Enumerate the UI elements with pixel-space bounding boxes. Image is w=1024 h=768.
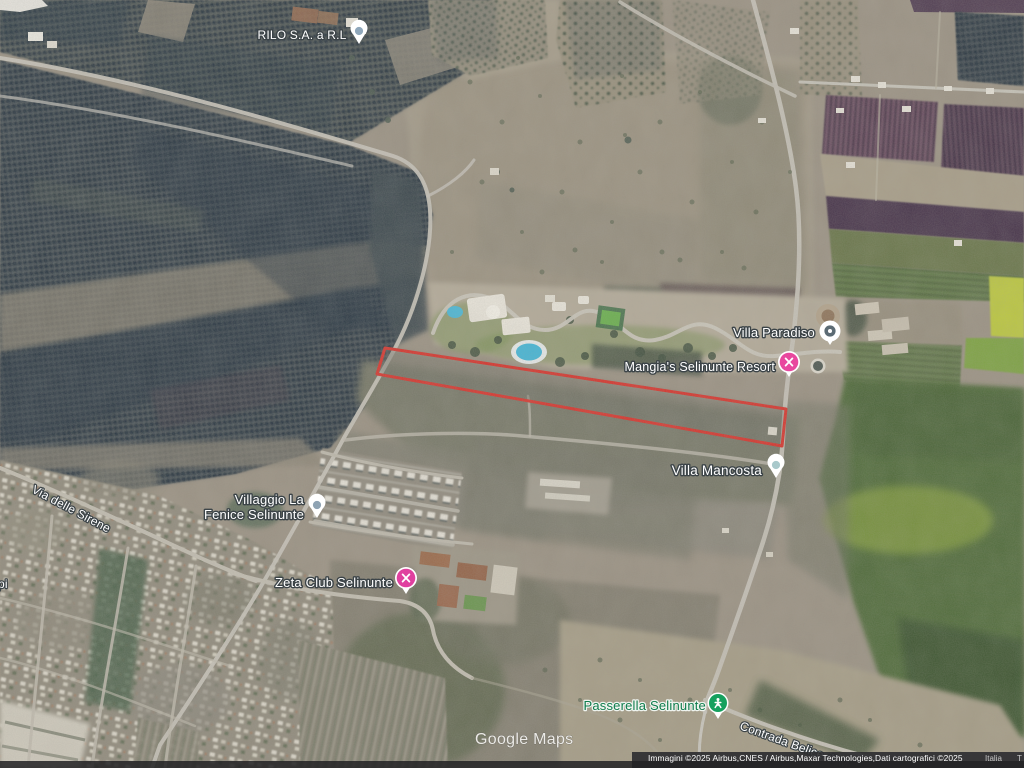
svg-text:Immagini ©2025 Airbus,CNES / A: Immagini ©2025 Airbus,CNES / Airbus,Maxa… — [648, 753, 963, 763]
svg-text:Google Maps: Google Maps — [475, 731, 573, 748]
svg-text:RILO S.A. a R.L: RILO S.A. a R.L — [257, 28, 346, 42]
svg-text:T: T — [1017, 754, 1022, 763]
svg-text:Villa Paradiso: Villa Paradiso — [733, 325, 815, 340]
svg-text:Fenice Selinunte: Fenice Selinunte — [204, 507, 304, 522]
svg-text:Mangia's Selinunte Resort: Mangia's Selinunte Resort — [624, 360, 775, 374]
svg-text:pi: pi — [0, 577, 8, 591]
svg-text:Passerella Selinunte: Passerella Selinunte — [583, 698, 706, 713]
svg-text:Villa Mancosta: Villa Mancosta — [672, 463, 763, 478]
svg-text:Italia: Italia — [985, 754, 1002, 763]
svg-text:Villaggio La: Villaggio La — [235, 492, 305, 507]
svg-text:Zeta Club Selinunte: Zeta Club Selinunte — [275, 575, 393, 590]
